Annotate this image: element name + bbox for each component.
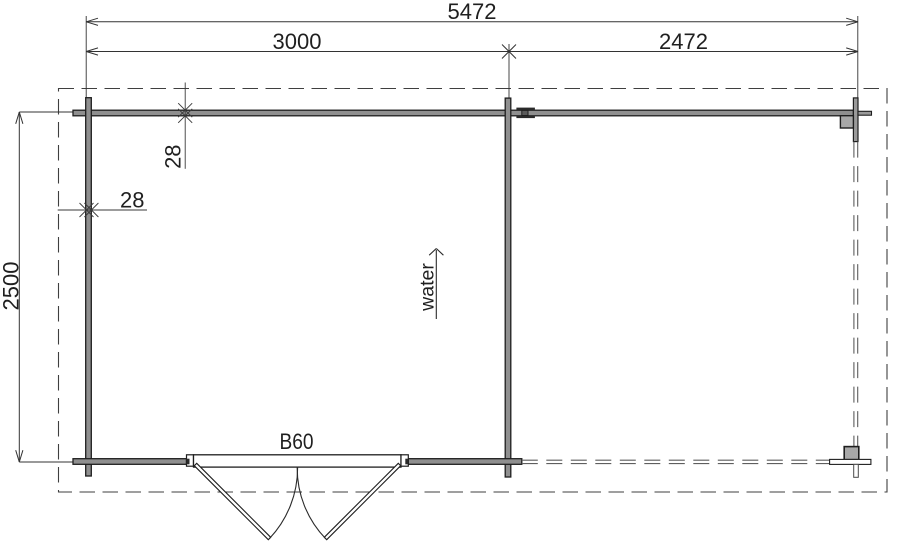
svg-text:water: water (416, 263, 438, 312)
svg-text:2500: 2500 (0, 262, 23, 311)
svg-text:28: 28 (161, 144, 186, 168)
svg-text:3000: 3000 (273, 29, 322, 54)
svg-text:28: 28 (120, 188, 144, 213)
svg-text:5472: 5472 (448, 0, 497, 24)
svg-text:B60: B60 (279, 430, 313, 455)
svg-text:2472: 2472 (659, 29, 708, 54)
